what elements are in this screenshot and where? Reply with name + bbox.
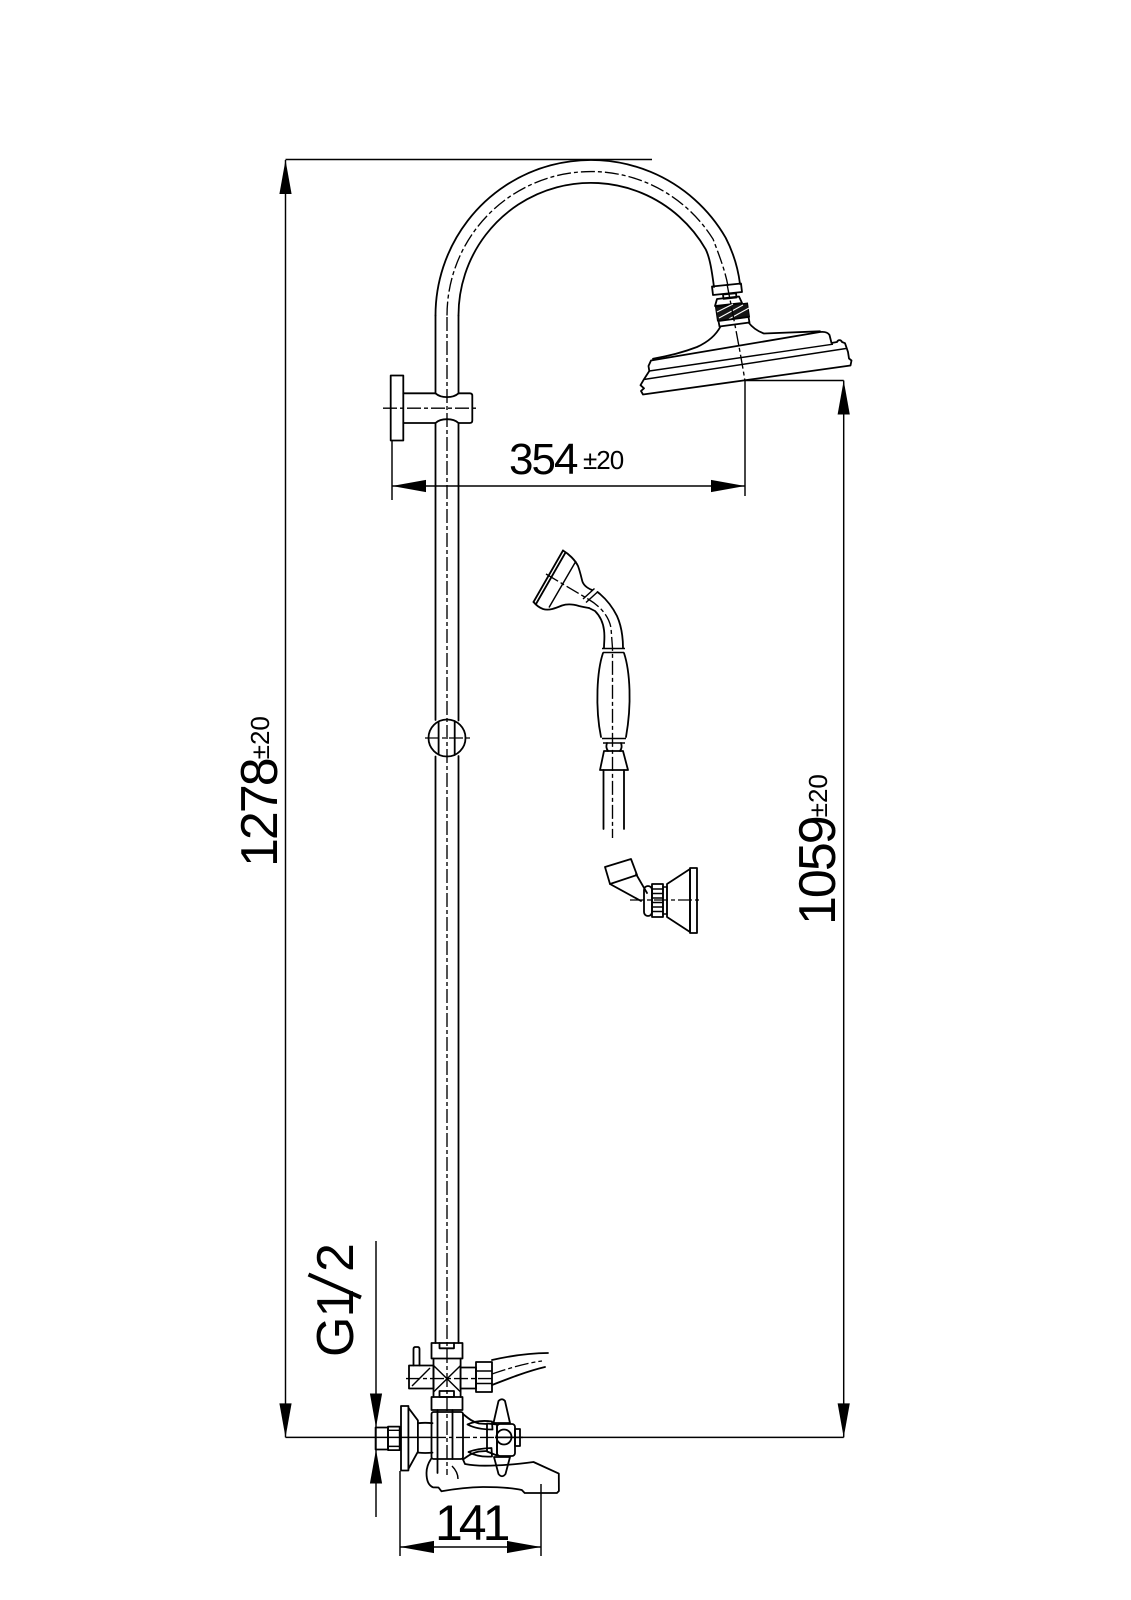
svg-text:141: 141 [435,1495,509,1551]
svg-text:G1: G1 [307,1290,365,1357]
svg-text:2: 2 [307,1243,365,1272]
svg-text:354: 354 [509,435,578,484]
svg-text:±20: ±20 [583,445,624,475]
